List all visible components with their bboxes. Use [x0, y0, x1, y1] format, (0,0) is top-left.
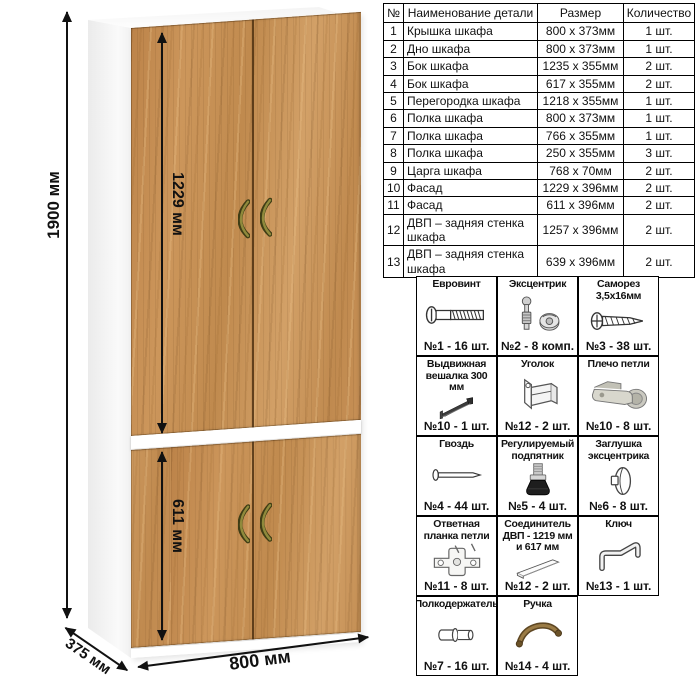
parts-table-cell: 2	[384, 40, 404, 57]
hardware-item-count: №3 - 38 шт.	[586, 340, 652, 354]
hardware-item-title: Ответная планка петли	[418, 519, 495, 542]
parts-table-cell: 1 шт.	[624, 127, 695, 144]
parts-table-cell: 1257 х 396мм	[538, 214, 624, 246]
hardware-cell: Выдвижная вешалка 300 мм№10 - 1 шт.	[416, 356, 497, 436]
parts-table-cell: 6	[384, 110, 404, 127]
parts-table-cell: 1	[384, 23, 404, 40]
parts-table-cell: ДВП – задняя стенка шкафа	[404, 214, 538, 246]
hardware-item-title: Гвоздь	[439, 439, 474, 451]
parts-table-cell: ДВП – задняя стенка шкафа	[404, 246, 538, 278]
door-seam	[252, 441, 254, 639]
hardware-item-count: №7 - 16 шт.	[424, 660, 490, 674]
hardware-item-title: Ключ	[605, 519, 632, 531]
hardware-cell: Соединитель ДВП - 1219 мм и 617 мм№12 - …	[497, 516, 578, 596]
height-dimension-arrow	[66, 12, 68, 618]
hardware-item-title: Ручка	[523, 599, 552, 611]
hinge-plate-icon	[418, 542, 495, 580]
hardware-item-title: Уголок	[521, 359, 554, 371]
lower-section-dimension-label: 611 мм	[168, 486, 186, 566]
parts-table-cell: 1 шт.	[624, 110, 695, 127]
parts-table-cell: 9	[384, 162, 404, 179]
hardware-item-title: Регулируемый подпятник	[499, 439, 576, 462]
parts-table-row: 8Полка шкафа250 х 355мм3 шт.	[384, 145, 695, 162]
parts-table-cell: 800 х 373мм	[538, 110, 624, 127]
parts-table-row: 3Бок шкафа1235 х 355мм2 шт.	[384, 58, 695, 75]
parts-table-cell: 2 шт.	[624, 197, 695, 214]
hardware-cell: Уголок№12 - 2 шт.	[497, 356, 578, 436]
key-icon	[580, 531, 657, 581]
hardware-cell: Эксцентрик№2 - 8 комп.	[497, 276, 578, 356]
parts-table-cell: 639 х 396мм	[538, 246, 624, 278]
parts-table-row: 7Полка шкафа766 х 355мм1 шт.	[384, 127, 695, 144]
parts-table-row: 5Перегородка шкафа1218 х 355мм1 шт.	[384, 92, 695, 109]
hardware-item-count: №12 - 2 шт.	[505, 420, 571, 434]
hardware-item-title: Эксцентрик	[509, 279, 566, 291]
parts-table-cell: 4	[384, 75, 404, 92]
parts-table-cell: 2 шт.	[624, 179, 695, 196]
hardware-item-count: №14 - 4 шт.	[505, 660, 571, 674]
parts-table-cell: 1 шт.	[624, 40, 695, 57]
hardware-cell: Полкодержатель№7 - 16 шт.	[416, 596, 497, 676]
parts-table-cell: Бок шкафа	[404, 75, 538, 92]
parts-table-cell: 766 х 355мм	[538, 127, 624, 144]
corner-bracket-icon	[499, 371, 576, 421]
parts-table-cell: 2 шт.	[624, 162, 695, 179]
parts-table-cell: 2 шт.	[624, 246, 695, 278]
parts-table-row: 10Фасад1229 х 396мм2 шт.	[384, 179, 695, 196]
hardware-item-title: Соединитель ДВП - 1219 мм и 617 мм	[499, 519, 576, 554]
parts-table-row: 12ДВП – задняя стенка шкафа1257 х 396мм2…	[384, 214, 695, 246]
door-seam	[252, 19, 254, 427]
hardware-cell: Плечо петли№10 - 8 шт.	[578, 356, 659, 436]
parts-table-cell: 7	[384, 127, 404, 144]
hardware-cell: Саморез 3,5х16мм№3 - 38 шт.	[578, 276, 659, 356]
hardware-item-count: №2 - 8 комп.	[501, 340, 574, 354]
hardware-item-count: №13 - 1 шт.	[586, 580, 652, 594]
parts-table-cell: Фасад	[404, 179, 538, 196]
hardware-item-count: №11 - 8 шт.	[424, 580, 489, 594]
parts-table-row: 4Бок шкафа617 х 355мм2 шт.	[384, 75, 695, 92]
parts-table-cell: 1 шт.	[624, 23, 695, 40]
parts-table-row: 9Царга шкафа768 х 70мм2 шт.	[384, 162, 695, 179]
parts-table-cell: 1229 х 396мм	[538, 179, 624, 196]
parts-table-cell: Бок шкафа	[404, 58, 538, 75]
parts-table-header-cell: Размер	[538, 4, 624, 23]
parts-table-header-row: №Наименование деталиРазмерКоличество	[384, 4, 695, 23]
parts-table-cell: 2 шт.	[624, 58, 695, 75]
hardware-item-count: №5 - 4 шт.	[508, 500, 567, 514]
parts-table-row: 13ДВП – задняя стенка шкафа639 х 396мм2 …	[384, 246, 695, 278]
upper-section-dimension-label: 1229 мм	[168, 164, 186, 244]
parts-table-cell: 617 х 355мм	[538, 75, 624, 92]
door-handle	[260, 197, 272, 238]
door-handle	[238, 199, 250, 240]
hardware-item-count: №10 - 1 шт.	[424, 420, 490, 434]
pullout-hanger-icon	[418, 394, 495, 421]
wardrobe-side-panel	[88, 20, 131, 658]
hardware-item-title: Заглушка эксцентрика	[580, 439, 657, 462]
door-handle	[260, 502, 272, 543]
parts-table-cell: 11	[384, 197, 404, 214]
wardrobe-upper-doors	[131, 12, 361, 436]
hinge-arm-icon	[580, 371, 657, 421]
parts-table-cell: 8	[384, 145, 404, 162]
lower-section-dimension-arrow	[161, 452, 163, 640]
parts-table-cell: 1 шт.	[624, 92, 695, 109]
eccentric-cam-icon	[499, 291, 576, 341]
parts-table: №Наименование деталиРазмерКоличество 1Кр…	[383, 3, 695, 278]
parts-table-cell: 2 шт.	[624, 214, 695, 246]
parts-table-cell: 250 х 355мм	[538, 145, 624, 162]
height-dimension-label: 1900 мм	[44, 165, 64, 245]
hardware-cell: Гвоздь№4 - 44 шт.	[416, 436, 497, 516]
hardware-item-count: №12 - 2 шт.	[505, 580, 571, 594]
parts-table-header-cell: Наименование детали	[404, 4, 538, 23]
parts-table-cell: Полка шкафа	[404, 127, 538, 144]
hardware-cell: Ключ№13 - 1 шт.	[578, 516, 659, 596]
hardware-item-count: №10 - 8 шт.	[586, 420, 652, 434]
hardware-item-title: Евровинт	[432, 279, 480, 291]
parts-table-cell: 3	[384, 58, 404, 75]
parts-table-cell: Крышка шкафа	[404, 23, 538, 40]
parts-table-header-cell: Количество	[624, 4, 695, 23]
parts-table-cell: Полка шкафа	[404, 110, 538, 127]
hardware-cell: Заглушка эксцентрика№6 - 8 шт.	[578, 436, 659, 516]
parts-table-cell: 800 х 373мм	[538, 40, 624, 57]
hardware-item-title: Полкодержатель	[416, 599, 497, 611]
shelf-pin-icon	[418, 611, 495, 661]
parts-table-row: 6Полка шкафа800 х 373мм1 шт.	[384, 110, 695, 127]
wardrobe-front	[131, 12, 361, 658]
parts-table-cell: 1235 х 355мм	[538, 58, 624, 75]
parts-table-cell: 10	[384, 179, 404, 196]
parts-table-cell: 800 х 373мм	[538, 23, 624, 40]
cam-cap-icon	[580, 462, 657, 500]
parts-table-cell: Дно шкафа	[404, 40, 538, 57]
wardrobe-lower-doors	[131, 434, 361, 648]
upper-section-dimension-arrow	[161, 33, 163, 433]
parts-table-cell: 3 шт.	[624, 145, 695, 162]
nail-icon	[418, 451, 495, 501]
parts-table-header-cell: №	[384, 4, 404, 23]
parts-table-cell: 611 х 396мм	[538, 197, 624, 214]
parts-table-cell: 13	[384, 246, 404, 278]
hardware-item-count: №4 - 44 шт.	[424, 500, 490, 514]
self-tapping-screw-icon	[580, 302, 657, 340]
hardware-cell: Регулируемый подпятник№5 - 4 шт.	[497, 436, 578, 516]
hdf-connector-icon	[499, 554, 576, 581]
parts-table-cell: Фасад	[404, 197, 538, 214]
adjustable-foot-icon	[499, 462, 576, 500]
parts-table-row: 1Крышка шкафа800 х 373мм1 шт.	[384, 23, 695, 40]
parts-table-cell: 12	[384, 214, 404, 246]
hardware-cell: Ответная планка петли№11 - 8 шт.	[416, 516, 497, 596]
parts-table-cell: Царга шкафа	[404, 162, 538, 179]
parts-table-cell: Полка шкафа	[404, 145, 538, 162]
parts-table-cell: 768 х 70мм	[538, 162, 624, 179]
hardware-item-title: Саморез 3,5х16мм	[580, 279, 657, 302]
hardware-grid: Евровинт№1 - 16 шт.Эксцентрик№2 - 8 комп…	[416, 276, 660, 676]
hardware-item-title: Плечо петли	[588, 359, 650, 371]
euro-screw-icon	[418, 291, 495, 341]
parts-table-row: 2Дно шкафа800 х 373мм1 шт.	[384, 40, 695, 57]
door-handle	[238, 504, 250, 545]
hardware-cell: Ручка№14 - 4 шт.	[497, 596, 578, 676]
hardware-cell: Евровинт№1 - 16 шт.	[416, 276, 497, 356]
hardware-item-count: №1 - 16 шт.	[424, 340, 490, 354]
parts-table-cell: 2 шт.	[624, 75, 695, 92]
parts-table-row: 11Фасад611 х 396мм2 шт.	[384, 197, 695, 214]
parts-table-cell: 1218 х 355мм	[538, 92, 624, 109]
hardware-item-title: Выдвижная вешалка 300 мм	[418, 359, 495, 394]
parts-table-cell: Перегородка шкафа	[404, 92, 538, 109]
handle-icon	[499, 611, 576, 661]
parts-table-cell: 5	[384, 92, 404, 109]
hardware-item-count: №6 - 8 шт.	[589, 500, 648, 514]
